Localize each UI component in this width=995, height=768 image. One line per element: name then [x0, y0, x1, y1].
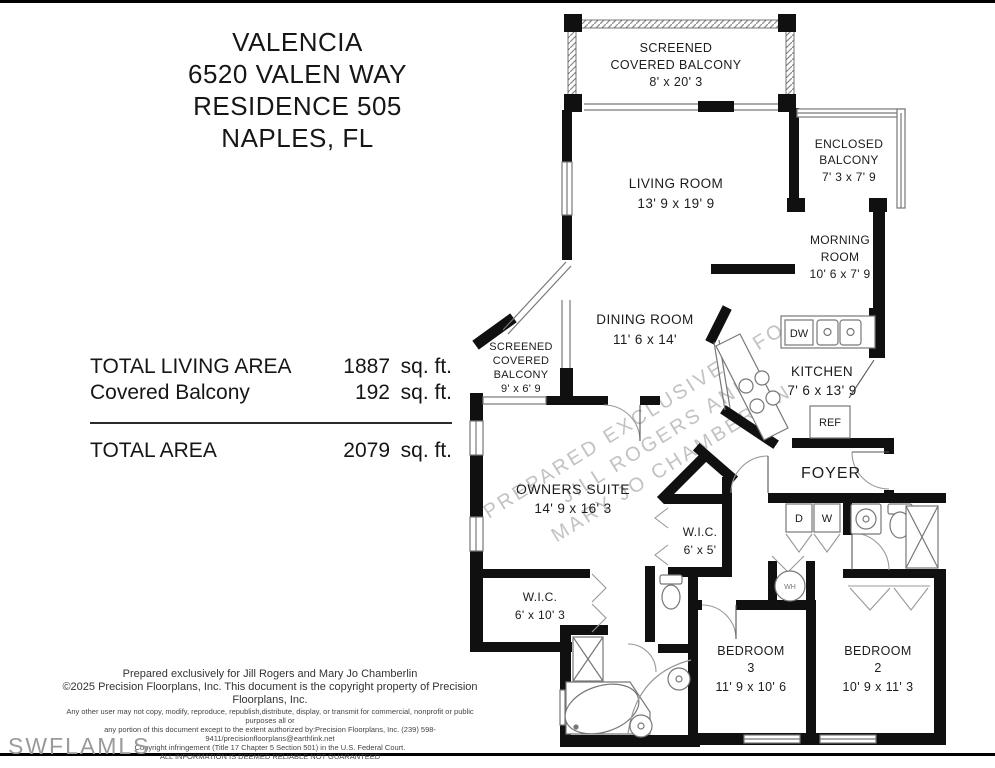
stove-burner	[766, 391, 780, 405]
svg-text:DINING ROOM: DINING ROOM	[596, 312, 693, 327]
svg-text:BALCONY: BALCONY	[494, 369, 549, 381]
room-label-living-room: LIVING ROOM 13' 9 x 19' 9	[629, 176, 723, 211]
svg-text:13' 9 x 19' 9: 13' 9 x 19' 9	[637, 196, 714, 211]
mls-watermark: SWFLAMLS	[8, 733, 151, 760]
washer-label: W	[822, 513, 833, 525]
svg-text:KITCHEN: KITCHEN	[791, 364, 853, 379]
stove-burner	[750, 399, 764, 413]
svg-text:11' 6 x 14': 11' 6 x 14'	[613, 332, 677, 347]
room-label-wic-large: W.I.C. 6' x 10' 3	[515, 590, 565, 622]
svg-text:7' 3 x 7' 9: 7' 3 x 7' 9	[822, 170, 876, 184]
svg-text:BEDROOM: BEDROOM	[844, 644, 911, 658]
refrigerator-label: REF	[819, 417, 841, 429]
svg-text:COVERED: COVERED	[493, 355, 550, 367]
svg-text:14' 9 x 16' 3: 14' 9 x 16' 3	[534, 501, 611, 516]
footer-prepared-for: Prepared exclusively for Jill Rogers and…	[58, 668, 482, 681]
svg-text:10' 9 x 11' 3: 10' 9 x 11' 3	[843, 680, 914, 694]
svg-text:SCREENED: SCREENED	[489, 341, 553, 353]
svg-text:8' x 20' 3: 8' x 20' 3	[649, 75, 702, 89]
svg-text:W.I.C.: W.I.C.	[683, 525, 717, 539]
svg-text:SCREENED: SCREENED	[640, 41, 713, 55]
master-toilet-tank	[660, 575, 682, 584]
svg-text:3: 3	[747, 661, 754, 675]
room-label-dining-room: DINING ROOM 11' 6 x 14'	[596, 312, 693, 347]
svg-text:MORNING: MORNING	[810, 233, 870, 247]
svg-text:FOYER: FOYER	[801, 465, 861, 482]
svg-text:2: 2	[874, 661, 881, 675]
svg-text:11' 9 x 10' 6: 11' 9 x 10' 6	[716, 680, 787, 694]
room-label-foyer: FOYER	[801, 465, 861, 482]
svg-text:BEDROOM: BEDROOM	[717, 644, 784, 658]
svg-text:6' x 10' 3: 6' x 10' 3	[515, 608, 565, 622]
svg-text:7' 6 x 13' 9: 7' 6 x 13' 9	[787, 383, 856, 398]
stove-burner	[739, 379, 753, 393]
svg-text:OWNERS SUITE: OWNERS SUITE	[516, 481, 630, 497]
svg-text:9' x 6' 9: 9' x 6' 9	[501, 383, 541, 395]
room-label-morning-room: MORNING ROOM 10' 6 x 7' 9	[810, 233, 871, 281]
svg-text:6' x 5': 6' x 5'	[684, 543, 717, 557]
svg-text:W.I.C.: W.I.C.	[523, 590, 557, 604]
dryer-label: D	[795, 513, 803, 525]
svg-text:BALCONY: BALCONY	[819, 153, 878, 167]
bath-fixtures	[559, 504, 938, 743]
room-label-screened-balcony-left: SCREENED COVERED BALCONY 9' x 6' 9	[489, 341, 553, 395]
svg-text:LIVING ROOM: LIVING ROOM	[629, 176, 723, 191]
floor-plan: PREPARED EXCLUSIVELY FOR JILL ROGERS AND…	[0, 0, 995, 768]
svg-text:ROOM: ROOM	[821, 250, 860, 264]
svg-text:COVERED BALCONY: COVERED BALCONY	[610, 58, 741, 72]
svg-text:10' 6 x 7' 9: 10' 6 x 7' 9	[810, 267, 871, 281]
room-label-kitchen: KITCHEN 7' 6 x 13' 9	[787, 364, 856, 398]
room-label-bedroom-3: BEDROOM 3 11' 9 x 10' 6	[716, 644, 787, 694]
footer-legal-1: Any other user may not copy, modify, rep…	[58, 707, 482, 725]
floorplan-page: VALENCIA 6520 VALEN WAY RESIDENCE 505 NA…	[0, 0, 995, 768]
room-label-wic-small: W.I.C. 6' x 5'	[683, 525, 717, 557]
footer-copyright: ©2025 Precision Floorplans, Inc. This do…	[58, 681, 482, 707]
stove-burner	[755, 371, 769, 385]
master-toilet	[662, 585, 680, 609]
room-label-bedroom-2: BEDROOM 2 10' 9 x 11' 3	[843, 644, 914, 694]
room-label-enclosed-balcony: ENCLOSED BALCONY 7' 3 x 7' 9	[815, 137, 883, 184]
dishwasher-label: DW	[790, 328, 809, 340]
room-label-screened-balcony-top: SCREENED COVERED BALCONY 8' x 20' 3	[610, 41, 741, 89]
water-heater-label: WH	[784, 584, 796, 591]
svg-text:ENCLOSED: ENCLOSED	[815, 137, 883, 151]
